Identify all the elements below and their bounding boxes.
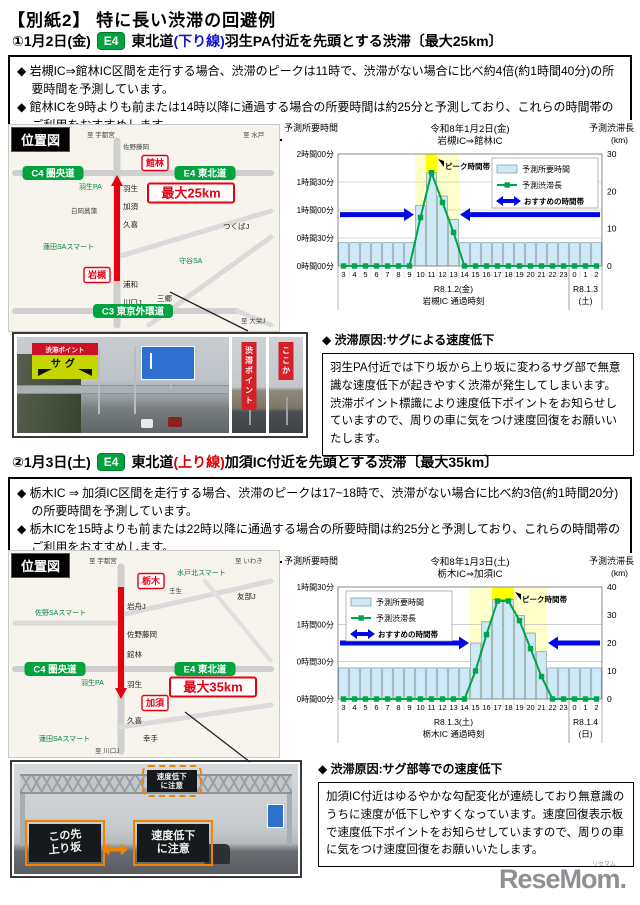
svg-text:ピーク時間帯: ピーク時間帯 — [445, 161, 490, 171]
svg-text:最大25km: 最大25km — [161, 186, 220, 201]
svg-text:予測所要時間: 予測所要時間 — [376, 597, 424, 607]
svg-text:岩槻IC 通過時刻: 岩槻IC 通過時刻 — [423, 296, 485, 306]
svg-text:17: 17 — [493, 703, 501, 712]
svg-text:蓮田SAスマート: 蓮田SAスマート — [43, 242, 94, 251]
svg-text:20: 20 — [607, 638, 617, 648]
svg-text:羽生: 羽生 — [127, 679, 142, 689]
e4-route-badge: E4 — [97, 453, 126, 471]
map-title-badge: 位置図 — [11, 127, 70, 152]
svg-text:18: 18 — [504, 270, 512, 279]
svg-text:7: 7 — [385, 270, 389, 279]
section1-header: ①1月2日(金) E4 東北道(下り線)羽生PA付近を先頭とする渋滞〔最大25k… — [12, 31, 503, 51]
svg-text:佐野藤岡: 佐野藤岡 — [123, 142, 149, 151]
svg-text:0時間30分: 0時間30分 — [297, 658, 334, 667]
svg-text:至 いわき: 至 いわき — [235, 557, 263, 565]
svg-text:佐野SAスマート: 佐野SAスマート — [35, 608, 86, 617]
svg-text:1: 1 — [583, 703, 587, 712]
svg-text:22: 22 — [548, 270, 556, 279]
direction-down-label: (下り線) — [173, 33, 224, 49]
jam-point-banner: 渋滞ポイント — [32, 343, 98, 355]
jam-point-vertical-banner: 渋滞ポイント — [242, 342, 257, 410]
uphill-ahead-led-sign: この先 上り坂 — [29, 824, 101, 862]
svg-text:C4 圏央道: C4 圏央道 — [33, 664, 77, 676]
svg-text:至 川口J: 至 川口J — [95, 747, 120, 755]
cause-body: 羽生PA付近では下り坂から上り坂に変わるサグ部で無意識な速度低下が起きやすく渋滞… — [322, 353, 634, 456]
section2-route: 東北道(上り線)加須IC付近を先頭とする渋滞〔最大35km〕 — [131, 452, 498, 472]
location-map-2: 位置図 至 宇都宮至 いわき栃木都賀J栃木水戸北スマート壬生岩舟J佐野SAスマー… — [8, 550, 280, 758]
orange-double-arrow-icon — [102, 843, 128, 855]
svg-text:5: 5 — [363, 703, 367, 712]
svg-text:12: 12 — [438, 703, 446, 712]
svg-text:R8.1.3: R8.1.3 — [573, 284, 598, 294]
svg-text:羽生: 羽生 — [123, 183, 138, 193]
cause-heading: ◆ 渋滞原因:サグ部等での速度低下 — [318, 760, 634, 777]
svg-text:羽生PA: 羽生PA — [79, 182, 102, 191]
svg-text:至 宇都宮: 至 宇都宮 — [87, 130, 115, 139]
speed-recovery-photo: 速度低下 に注意 この先 上り坂 速度低下 に注意 — [10, 760, 302, 878]
svg-text:E4 東北道: E4 東北道 — [184, 168, 227, 180]
svg-text:6: 6 — [374, 703, 378, 712]
uphill-arrow-icon — [78, 369, 92, 376]
svg-text:友部J: 友部J — [237, 591, 256, 601]
svg-text:1時間00分: 1時間00分 — [297, 206, 334, 215]
svg-text:10: 10 — [607, 666, 617, 676]
svg-text:19: 19 — [515, 703, 523, 712]
svg-text:10: 10 — [416, 703, 424, 712]
section1-number-date: ①1月2日(金) — [12, 31, 91, 51]
koko-vertical-banner: ここか — [279, 342, 294, 380]
map-title-badge: 位置図 — [11, 553, 70, 578]
svg-text:令和8年1月2日(金): 令和8年1月2日(金) — [430, 123, 509, 135]
travel-time-chart-1: 0時間00分0時間30分1時間00分1時間30分2時間00分0102030345… — [282, 120, 636, 324]
svg-text:0時間30分: 0時間30分 — [297, 234, 334, 243]
svg-text:R8.1.3(土): R8.1.3(土) — [434, 717, 473, 727]
svg-text:21: 21 — [537, 270, 545, 279]
svg-text:0: 0 — [607, 694, 612, 704]
svg-text:至 水戸: 至 水戸 — [243, 130, 265, 139]
car — [168, 417, 182, 427]
banner-pole — [286, 397, 288, 426]
svg-text:予測所要時間: 予測所要時間 — [284, 555, 338, 566]
svg-text:3: 3 — [341, 703, 345, 712]
cause-section-1: ◆ 渋滞原因:サグによる速度低下 羽生PA付近では下り坂から上り坂に変わるサグ部… — [322, 331, 634, 456]
svg-text:8: 8 — [396, 703, 400, 712]
svg-text:40: 40 — [607, 582, 617, 592]
downhill-arrow-icon — [38, 369, 52, 376]
travel-time-chart-2: 0時間00分0時間30分1時間00分1時間30分0102030403456789… — [282, 553, 636, 757]
e4-route-badge: E4 — [97, 32, 126, 50]
svg-text:栃木IC 通過時刻: 栃木IC 通過時刻 — [423, 729, 485, 739]
svg-text:14: 14 — [460, 270, 468, 279]
speed-drop-led-sign: 速度低下 に注意 — [147, 770, 197, 792]
svg-text:館林: 館林 — [127, 649, 142, 659]
section2-number-date: ②1月3日(土) — [12, 452, 91, 472]
svg-text:白岡菖蒲: 白岡菖蒲 — [71, 206, 98, 215]
bullet-item: ◆ 栃木IC ⇒ 加須IC区間を走行する場合、渋滞のピークは17~18時で、渋滞… — [17, 484, 623, 520]
svg-text:2: 2 — [594, 703, 598, 712]
resemom-logo: リセマム ReseMom. — [499, 864, 626, 895]
svg-text:21: 21 — [537, 703, 545, 712]
svg-text:(km): (km) — [611, 568, 628, 578]
svg-text:20: 20 — [526, 703, 534, 712]
svg-text:15: 15 — [471, 270, 479, 279]
cause-body: 加須IC付近はゆるやかな勾配変化が連続しており無意識のうちに速度が低下しやすくな… — [318, 782, 634, 867]
svg-text:E4 東北道: E4 東北道 — [184, 664, 227, 676]
banner-photo-2: ここか — [269, 337, 303, 433]
svg-text:0: 0 — [607, 261, 612, 271]
svg-text:岩槻IC⇒館林IC: 岩槻IC⇒館林IC — [438, 135, 503, 147]
banner-photo-1: 渋滞ポイント — [232, 337, 266, 433]
svg-text:4: 4 — [352, 703, 356, 712]
svg-text:23: 23 — [559, 703, 567, 712]
speed-drop-led-sign-large: 速度低下 に注意 — [137, 824, 209, 862]
svg-text:1: 1 — [583, 270, 587, 279]
svg-text:蓮田SAスマート: 蓮田SAスマート — [39, 734, 90, 743]
svg-text:栃木IC⇒加須IC: 栃木IC⇒加須IC — [438, 568, 503, 580]
cause-heading: ◆ 渋滞原因:サグによる速度低下 — [322, 331, 634, 348]
svg-text:6: 6 — [374, 270, 378, 279]
svg-text:おすすめの時間帯: おすすめの時間帯 — [524, 196, 584, 206]
svg-text:2: 2 — [594, 270, 598, 279]
svg-text:久喜: 久喜 — [127, 715, 142, 725]
svg-text:4: 4 — [352, 270, 356, 279]
svg-text:つくばJ: つくばJ — [223, 222, 249, 231]
svg-text:9: 9 — [407, 703, 411, 712]
svg-text:ピーク時間帯: ピーク時間帯 — [522, 594, 567, 604]
svg-text:(土): (土) — [578, 296, 592, 306]
svg-text:岩舟J: 岩舟J — [127, 601, 146, 611]
svg-text:7: 7 — [385, 703, 389, 712]
svg-text:10: 10 — [416, 270, 424, 279]
chart-svg: 0時間00分0時間30分1時間00分1時間30分0102030403456789… — [282, 553, 636, 757]
caution-sign-inset: 速度低下 に注意 — [133, 820, 213, 866]
svg-text:20: 20 — [607, 186, 617, 196]
svg-text:10: 10 — [607, 224, 617, 234]
svg-text:予測渋滞長: 予測渋滞長 — [376, 613, 416, 623]
svg-text:水戸北スマート: 水戸北スマート — [177, 568, 226, 577]
svg-text:20: 20 — [526, 270, 534, 279]
svg-text:18: 18 — [504, 703, 512, 712]
svg-text:(km): (km) — [611, 135, 628, 145]
sign-pole — [98, 347, 100, 414]
svg-text:0: 0 — [572, 270, 576, 279]
svg-text:久喜: 久喜 — [123, 219, 138, 229]
svg-text:R8.1.4: R8.1.4 — [573, 717, 598, 727]
svg-text:予測渋滞長: 予測渋滞長 — [589, 122, 634, 133]
svg-text:加須: 加須 — [123, 201, 138, 211]
section2-header: ②1月3日(土) E4 東北道(上り線)加須IC付近を先頭とする渋滞〔最大35k… — [12, 452, 498, 472]
cause-section-2: ◆ 渋滞原因:サグ部等での速度低下 加須IC付近はゆるやかな勾配変化が連続してお… — [318, 760, 634, 867]
sag-label: サグ — [32, 355, 98, 379]
sag-point-photo: 渋滞ポイント サグ 渋滞ポイント ここか — [12, 332, 308, 438]
svg-text:おすすめの時間帯: おすすめの時間帯 — [378, 629, 438, 639]
sign-pole — [134, 347, 136, 414]
svg-text:予測所要時間: 予測所要時間 — [522, 164, 570, 174]
svg-text:2時間00分: 2時間00分 — [297, 150, 334, 159]
sag-warning-sign: 渋滞ポイント サグ — [32, 343, 98, 379]
svg-text:0: 0 — [572, 703, 576, 712]
chart-svg: 0時間00分0時間30分1時間00分1時間30分2時間00分0102030345… — [282, 120, 636, 324]
svg-text:幸手: 幸手 — [143, 733, 158, 743]
svg-text:栃木: 栃木 — [142, 575, 161, 586]
svg-text:30: 30 — [607, 149, 617, 159]
svg-text:1時間30分: 1時間30分 — [297, 583, 334, 592]
svg-text:3: 3 — [341, 270, 345, 279]
svg-text:予測所要時間: 予測所要時間 — [284, 122, 338, 133]
svg-text:加須: 加須 — [145, 697, 165, 708]
svg-text:C3 東京外環道: C3 東京外環道 — [102, 306, 165, 318]
map-svg: 至 宇都宮至 いわき栃木都賀J栃木水戸北スマート壬生岩舟J佐野SAスマート友部J… — [9, 551, 279, 757]
location-map-1: 位置図 至 宇都宮至 水戸佐野藤岡館林C4 圏央道E4 東北道羽生PA羽生最大2… — [8, 124, 280, 332]
svg-text:壬生: 壬生 — [169, 586, 183, 595]
svg-text:最大35km: 最大35km — [183, 680, 242, 695]
svg-text:5: 5 — [363, 270, 367, 279]
svg-text:佐野藤岡: 佐野藤岡 — [127, 629, 157, 639]
svg-text:(日): (日) — [578, 729, 592, 739]
svg-text:13: 13 — [449, 703, 457, 712]
svg-text:館林: 館林 — [145, 157, 165, 168]
page-title: 【別紙2】 特に長い渋滞の回避例 — [8, 6, 276, 31]
svg-text:14: 14 — [460, 703, 468, 712]
svg-text:19: 19 — [515, 270, 523, 279]
svg-text:予測渋滞長: 予測渋滞長 — [589, 555, 634, 566]
svg-text:8: 8 — [396, 270, 400, 279]
svg-text:令和8年1月3日(土): 令和8年1月3日(土) — [430, 556, 509, 568]
guide-sign — [141, 346, 195, 380]
map-svg: 至 宇都宮至 水戸佐野藤岡館林C4 圏央道E4 東北道羽生PA羽生最大25km加… — [9, 125, 279, 331]
uphill-ahead-sign-inset: この先 上り坂 — [25, 820, 105, 866]
svg-text:16: 16 — [482, 270, 490, 279]
direction-up-label: (上り線) — [173, 454, 224, 470]
svg-text:R8.1.2(金): R8.1.2(金) — [434, 284, 473, 294]
car — [141, 419, 153, 428]
overpass-bridge — [17, 385, 229, 394]
svg-text:至 大栄J: 至 大栄J — [241, 316, 266, 325]
svg-text:22: 22 — [548, 703, 556, 712]
svg-text:30: 30 — [607, 610, 617, 620]
map-canvas: 至 宇都宮至 いわき栃木都賀J栃木水戸北スマート壬生岩舟J佐野SAスマート友部J… — [9, 551, 279, 757]
svg-text:岩槻: 岩槻 — [87, 269, 106, 280]
gantry-photo: 速度低下 に注意 この先 上り坂 速度低下 に注意 — [14, 764, 298, 874]
svg-text:羽生PA: 羽生PA — [81, 678, 104, 687]
svg-text:予測渋滞長: 予測渋滞長 — [522, 180, 562, 190]
svg-text:23: 23 — [559, 270, 567, 279]
svg-text:16: 16 — [482, 703, 490, 712]
svg-text:至 宇都宮: 至 宇都宮 — [89, 556, 117, 565]
svg-text:1時間30分: 1時間30分 — [297, 178, 334, 187]
svg-text:1時間00分: 1時間00分 — [297, 620, 334, 629]
section1-route: 東北道(下り線)羽生PA付近を先頭とする渋滞〔最大25km〕 — [131, 31, 502, 51]
svg-text:9: 9 — [407, 270, 411, 279]
bullet-item: ◆ 岩槻IC⇒館林IC区間を走行する場合、渋滞のピークは11時で、渋滞がない場合… — [17, 62, 623, 98]
logo-ruby: リセマム — [592, 859, 616, 868]
svg-text:15: 15 — [471, 703, 479, 712]
svg-text:浦和: 浦和 — [123, 279, 138, 289]
svg-text:11: 11 — [428, 703, 436, 712]
svg-text:守谷SA: 守谷SA — [179, 256, 203, 265]
map-canvas: 至 宇都宮至 水戸佐野藤岡館林C4 圏央道E4 東北道羽生PA羽生最大25km加… — [9, 125, 279, 331]
svg-text:0時間00分: 0時間00分 — [297, 695, 334, 704]
svg-text:0時間00分: 0時間00分 — [297, 262, 334, 271]
guide-sign — [267, 804, 284, 828]
svg-text:11: 11 — [428, 270, 436, 279]
highway-photo: 渋滞ポイント サグ — [17, 337, 229, 433]
svg-text:C4 圏央道: C4 圏央道 — [31, 168, 75, 180]
svg-text:三郷: 三郷 — [157, 294, 172, 303]
svg-text:17: 17 — [493, 270, 501, 279]
svg-text:13: 13 — [449, 270, 457, 279]
speed-drop-sign-highlight: 速度低下 に注意 — [142, 765, 202, 797]
svg-text:12: 12 — [438, 270, 446, 279]
